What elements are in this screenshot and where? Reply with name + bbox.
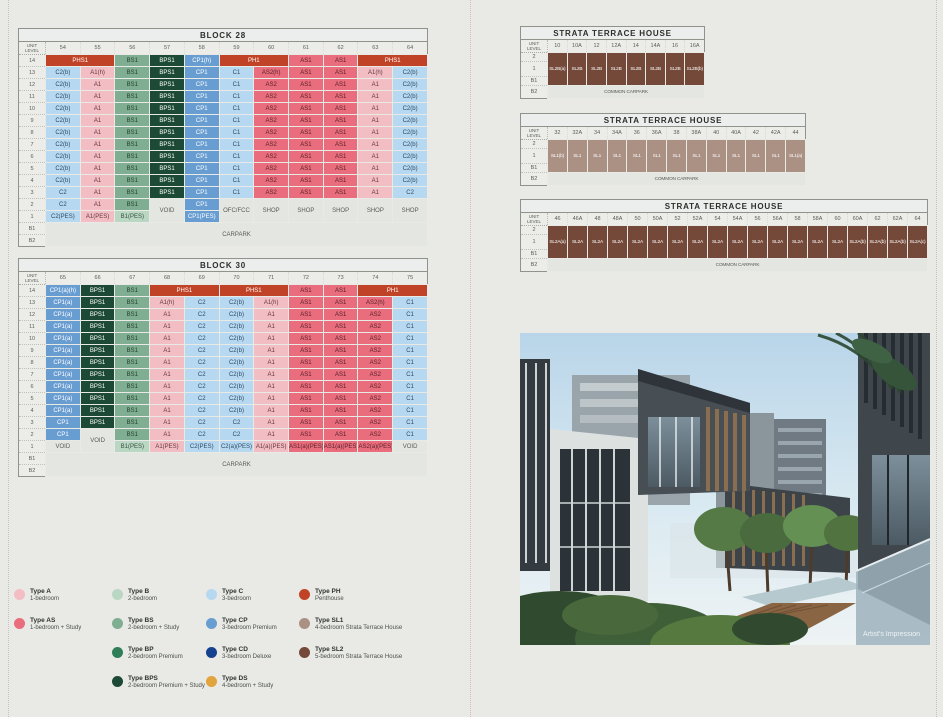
unit-cell: AS1 (289, 103, 324, 115)
stack-number: 46 (548, 213, 568, 226)
unit-cell: A1 (254, 309, 289, 321)
unit-cell: BPS1 (80, 333, 115, 345)
unit-cell: C1 (393, 297, 428, 309)
unit-cell: A1 (358, 151, 393, 163)
unit-cell: A1 (80, 199, 115, 211)
unit-cell: AS1 (323, 333, 358, 345)
unit-cell: AS2 (254, 139, 289, 151)
unit-cell: SL2A (568, 226, 588, 259)
legend-item: Type SL14-bedroom Strata Terrace House (299, 617, 454, 633)
unit-cell: SL1(b) (548, 140, 568, 173)
unit-cell: BPS1 (80, 393, 115, 405)
unit-cell: A1(h) (150, 297, 185, 309)
legend-color-dot (112, 676, 123, 687)
legend-type-code: Type BP (128, 646, 183, 654)
level-label: 11 (19, 91, 46, 103)
unit-cell: BS1 (115, 103, 150, 115)
stack-number: 57 (150, 42, 185, 55)
unit-cell: AS1 (289, 285, 324, 297)
unit-cell: SHOP (358, 199, 393, 223)
unit-cell: C1 (219, 103, 254, 115)
stack-number: 14A (646, 40, 666, 53)
level-label: 6 (19, 151, 46, 163)
unit-cell: C2 (184, 369, 219, 381)
unit-cell: A1(a)(PES) (254, 441, 289, 453)
level-label: B1 (19, 223, 46, 235)
unit-cell: AS1 (323, 405, 358, 417)
legend-type-description: 3-bedroom Deluxe (222, 654, 271, 662)
unit-cell: C2(b) (393, 127, 428, 139)
legend-color-dot (299, 647, 310, 658)
unit-cell: AS2 (254, 79, 289, 91)
unit-cell: C2(b) (46, 151, 81, 163)
unit-cell: SL1 (607, 140, 627, 173)
unit-cell: BS1 (115, 187, 150, 199)
unit-cell: AS2 (254, 127, 289, 139)
legend-type-code: Type BPS (128, 675, 205, 683)
unit-cell: C1 (393, 333, 428, 345)
level-label: B1 (521, 250, 548, 259)
unit-cell: A1 (254, 369, 289, 381)
unit-cell: CARPARK (46, 223, 428, 247)
legend-item: Type BP2-bedroom Premium (112, 646, 206, 662)
unit-cell: CP1 (184, 199, 219, 211)
level-label: 5 (19, 393, 46, 405)
unit-cell: AS1 (323, 345, 358, 357)
crop-mark-right (936, 0, 937, 717)
unit-cell: SL2A (708, 226, 728, 259)
legend-color-dot (206, 647, 217, 658)
unit-cell: SL2A (668, 226, 688, 259)
unit-cell: A1 (80, 127, 115, 139)
unit-cell: AS1(a)(PES) (323, 441, 358, 453)
unit-cell: C2(b) (219, 393, 254, 405)
level-label: 13 (19, 297, 46, 309)
unit-cell: AS1 (323, 417, 358, 429)
unit-cell: BS1 (115, 381, 150, 393)
unit-cell: BS1 (115, 151, 150, 163)
legend-color-dot (14, 618, 25, 629)
unit-cell: PHS1 (150, 285, 219, 297)
unit-cell: BS1 (115, 333, 150, 345)
unit-cell: CP1 (184, 79, 219, 91)
unit-cell: C2(b) (393, 67, 428, 79)
unit-cell: A1 (80, 103, 115, 115)
legend-type-code: Type CP (222, 617, 277, 625)
unit-cell: AS2 (358, 369, 393, 381)
stack-number: 72 (289, 272, 324, 285)
legend-item: Type DS4-bedroom + Study (206, 675, 299, 691)
unit-cell: C2(b) (393, 163, 428, 175)
unit-cell: CP1(a) (46, 333, 81, 345)
legend-item: Type BPS2-bedroom Premium + Study (112, 675, 206, 691)
unit-cell: A1 (150, 405, 185, 417)
stack-number: 48 (588, 213, 608, 226)
unit-cell: SL2B (665, 53, 685, 86)
unit-cell: AS1 (289, 333, 324, 345)
unit-cell: BPS1 (80, 297, 115, 309)
unit-cell: AS1 (289, 163, 324, 175)
unit-cell: SL1 (647, 140, 667, 173)
stack-number: 74 (358, 272, 393, 285)
unit-cell: BS1 (115, 55, 150, 67)
stack-number: 52A (688, 213, 708, 226)
unit-cell: C2 (184, 321, 219, 333)
unit-cell: COMMON CARPARK (548, 173, 806, 186)
stack-number: 60A (848, 213, 868, 226)
unit-cell: AS1 (289, 55, 324, 67)
unit-table: STRATA TERRACE HOUSEUNITLEVEL4646A4848A5… (520, 199, 928, 272)
stack-number: 54A (728, 213, 748, 226)
unit-cell: A1 (358, 139, 393, 151)
legend-type-description: 1-bedroom + Study (30, 625, 81, 633)
unit-cell: AS2 (358, 357, 393, 369)
legend-type-code: Type B (128, 588, 157, 596)
level-label: B2 (521, 86, 548, 99)
unit-cell: AS2 (254, 187, 289, 199)
level-label: 1 (19, 211, 46, 223)
unit-cell: AS1 (289, 357, 324, 369)
stack-number: 40A (726, 127, 746, 140)
stack-number: 14 (626, 40, 646, 53)
legend-type-description: 2-bedroom Premium (128, 654, 183, 662)
unit-cell: SL1 (746, 140, 766, 173)
level-label: 6 (19, 381, 46, 393)
unit-cell: A1 (254, 357, 289, 369)
unit-cell: BS1 (115, 357, 150, 369)
unit-level-header: UNITLEVEL (521, 127, 548, 140)
unit-cell: C2 (184, 357, 219, 369)
unit-cell: CP1 (184, 67, 219, 79)
unit-cell: AS1 (323, 91, 358, 103)
unit-cell: CP1(a)(h) (46, 285, 81, 297)
unit-cell: AS1 (289, 91, 324, 103)
stack-number: 60 (254, 42, 289, 55)
unit-cell: A1 (358, 79, 393, 91)
unit-cell: BS1 (115, 199, 150, 211)
stack-number: 71 (254, 272, 289, 285)
page-fold-line (470, 0, 471, 717)
unit-cell: BPS1 (150, 175, 185, 187)
stack-number: 62A (888, 213, 908, 226)
level-label: 3 (19, 187, 46, 199)
legend-type-description: 2-bedroom Premium + Study (128, 683, 205, 691)
unit-cell: C2(b) (46, 139, 81, 151)
unit-cell: A1 (80, 91, 115, 103)
unit-cell: SL2A(b) (868, 226, 888, 259)
stack-number: 50 (628, 213, 648, 226)
unit-cell: SHOP (323, 199, 358, 223)
unit-cell: BS1 (115, 91, 150, 103)
unit-cell: CP1 (46, 417, 81, 429)
unit-cell: C1 (219, 187, 254, 199)
unit-cell: A1 (358, 163, 393, 175)
unit-cell: BS1 (115, 115, 150, 127)
unit-cell: CP1 (184, 127, 219, 139)
unit-cell: BS1 (115, 321, 150, 333)
unit-cell: A1(h) (358, 67, 393, 79)
unit-cell: AS2(h) (254, 67, 289, 79)
unit-cell: SHOP (393, 199, 428, 223)
level-label: 9 (19, 345, 46, 357)
unit-cell: PHS1 (358, 55, 428, 67)
level-label: B2 (521, 259, 548, 272)
unit-cell: AS1 (323, 151, 358, 163)
unit-cell: BS1 (115, 429, 150, 441)
unit-cell: AS1 (323, 163, 358, 175)
unit-cell: AS1 (289, 381, 324, 393)
unit-cell: CP1(a) (46, 309, 81, 321)
unit-cell: A1 (80, 175, 115, 187)
legend-item: Type A1-bedroom (14, 588, 112, 604)
unit-cell: A1 (254, 417, 289, 429)
stack-number: 36 (627, 127, 647, 140)
unit-cell: SL1 (726, 140, 746, 173)
unit-cell: SL2A (788, 226, 808, 259)
legend-color-dot (206, 676, 217, 687)
unit-cell: C2(b) (46, 79, 81, 91)
level-label: 12 (19, 79, 46, 91)
unit-cell: AS1 (323, 187, 358, 199)
unit-cell: CP1(a) (46, 381, 81, 393)
photo-caption: Artist's Impression (863, 631, 920, 638)
unit-cell: AS2 (358, 381, 393, 393)
legend-item: Type CD3-bedroom Deluxe (206, 646, 299, 662)
unit-cell: AS2 (254, 151, 289, 163)
stack-number: 32 (548, 127, 568, 140)
unit-cell: C2(PES) (46, 211, 81, 223)
unit-cell: AS2 (358, 393, 393, 405)
unit-cell: SL1 (627, 140, 647, 173)
unit-cell: BPS1 (150, 55, 185, 67)
unit-cell: AS1 (289, 429, 324, 441)
level-label: B2 (19, 465, 46, 477)
unit-cell: AS1 (323, 67, 358, 79)
stack-number: 58A (808, 213, 828, 226)
legend-type-code: Type SL1 (315, 617, 402, 625)
unit-cell: CP1 (184, 175, 219, 187)
unit-cell: A1 (358, 91, 393, 103)
unit-cell: C2 (184, 309, 219, 321)
unit-cell: C2 (184, 345, 219, 357)
unit-cell: BPS1 (80, 369, 115, 381)
stack-number: 61 (289, 42, 324, 55)
unit-cell: A1(h) (80, 67, 115, 79)
unit-cell: SL2A (628, 226, 648, 259)
unit-cell: AS1 (323, 127, 358, 139)
unit-cell: AS1 (289, 79, 324, 91)
unit-cell: AS1 (323, 381, 358, 393)
legend-type-code: Type DS (222, 675, 273, 683)
unit-cell: BPS1 (150, 127, 185, 139)
unit-cell: VOID (46, 441, 81, 453)
legend-type-description: 5-bedroom Strata Terrace House (315, 654, 402, 662)
stack-number: 48A (608, 213, 628, 226)
unit-cell: BPS1 (150, 115, 185, 127)
stack-number: 56 (748, 213, 768, 226)
level-label: 14 (19, 285, 46, 297)
unit-cell: SL1 (667, 140, 687, 173)
level-label: 8 (19, 357, 46, 369)
unit-type-legend: Type A1-bedroomType AS1-bedroom + StudyT… (14, 588, 454, 691)
unit-cell: AS1 (323, 393, 358, 405)
level-label: B1 (521, 77, 548, 86)
unit-cell: A1 (80, 79, 115, 91)
level-label: B2 (521, 173, 548, 186)
unit-cell: AS2 (358, 321, 393, 333)
unit-cell: C2(b) (219, 333, 254, 345)
unit-cell: AS1 (289, 115, 324, 127)
unit-cell: BS1 (115, 405, 150, 417)
unit-cell: AS1 (323, 139, 358, 151)
stack-number: 36A (647, 127, 667, 140)
legend-item: Type AS1-bedroom + Study (14, 617, 112, 633)
stack-number: 59 (219, 42, 254, 55)
unit-cell: SHOP (289, 199, 324, 223)
unit-cell: C1 (219, 139, 254, 151)
stack-number: 12 (587, 40, 607, 53)
level-label: 8 (19, 127, 46, 139)
stack-number: 75 (393, 272, 428, 285)
unit-cell: AS2 (358, 333, 393, 345)
unit-cell: A1 (254, 381, 289, 393)
unit-cell: BS1 (115, 67, 150, 79)
unit-cell: CP1(a) (46, 405, 81, 417)
stack-number: 63 (358, 42, 393, 55)
unit-cell: CP1 (184, 115, 219, 127)
legend-type-description: 4-bedroom + Study (222, 683, 273, 691)
unit-cell: BS1 (115, 175, 150, 187)
crop-mark-left (8, 0, 9, 717)
unit-cell: SL2B(b) (685, 53, 705, 86)
stack-number: 12A (606, 40, 626, 53)
unit-cell: C2(b) (46, 127, 81, 139)
table-title: STRATA TERRACE HOUSE (521, 27, 705, 40)
unit-cell: BS1 (115, 285, 150, 297)
unit-cell: A1 (80, 115, 115, 127)
legend-item: Type SL25-bedroom Strata Terrace House (299, 646, 454, 662)
unit-cell: C2(b) (219, 321, 254, 333)
unit-cell: C1 (393, 321, 428, 333)
unit-cell: BPS1 (80, 405, 115, 417)
unit-cell: AS2 (358, 417, 393, 429)
unit-cell: C1 (393, 393, 428, 405)
unit-cell: CP1(a) (46, 345, 81, 357)
unit-cell: A1 (150, 417, 185, 429)
unit-cell: C2(b) (393, 139, 428, 151)
unit-cell: AS1 (289, 369, 324, 381)
unit-cell: A1(PES) (150, 441, 185, 453)
level-label: 2 (19, 429, 46, 441)
unit-cell: SL2B (587, 53, 607, 86)
unit-cell: C2(PES) (184, 441, 219, 453)
unit-cell: AS1 (289, 127, 324, 139)
unit-cell: C2 (46, 199, 81, 211)
unit-cell: CP1 (184, 91, 219, 103)
unit-cell: A1 (150, 309, 185, 321)
legend-column: Type C3-bedroomType CP3-bedroom PremiumT… (206, 588, 299, 691)
level-label: 12 (19, 309, 46, 321)
unit-cell: A1 (80, 163, 115, 175)
unit-cell: AS1 (323, 321, 358, 333)
stack-number: 67 (115, 272, 150, 285)
unit-cell: AS1 (289, 187, 324, 199)
unit-cell: A1 (150, 357, 185, 369)
unit-cell: C2 (184, 417, 219, 429)
stack-number: 34 (587, 127, 607, 140)
unit-cell: AS1 (289, 297, 324, 309)
legend-type-code: Type A (30, 588, 59, 596)
artist-impression-photo: Artist's Impression (520, 333, 930, 645)
unit-cell: C1 (393, 417, 428, 429)
unit-cell: AS2 (254, 103, 289, 115)
level-label: 1 (19, 441, 46, 453)
unit-cell: BPS1 (150, 67, 185, 79)
stack-number: 56A (768, 213, 788, 226)
unit-cell: A1(h) (254, 297, 289, 309)
unit-cell: BPS1 (150, 103, 185, 115)
unit-cell: A1 (150, 345, 185, 357)
unit-cell: BPS1 (150, 79, 185, 91)
unit-cell: C2(b) (219, 369, 254, 381)
unit-cell: BPS1 (150, 139, 185, 151)
unit-cell: BS1 (115, 417, 150, 429)
unit-cell: SL2A(c) (908, 226, 928, 259)
stack-number: 66 (80, 272, 115, 285)
unit-cell: C2(b) (219, 345, 254, 357)
stack-number: 10A (567, 40, 587, 53)
level-label: 10 (19, 333, 46, 345)
unit-cell: C2(a)(PES) (219, 441, 254, 453)
level-label: 7 (19, 139, 46, 151)
unit-cell: AS1 (323, 369, 358, 381)
level-label: 3 (19, 417, 46, 429)
unit-cell: C2(b) (219, 357, 254, 369)
stack-number: 56 (115, 42, 150, 55)
unit-cell: SL2A (748, 226, 768, 259)
unit-cell: AS1 (289, 393, 324, 405)
strata-terrace-table-3: STRATA TERRACE HOUSEUNITLEVEL4646A4848A5… (520, 199, 928, 272)
legend-item: Type C3-bedroom (206, 588, 299, 604)
legend-item: Type BS2-bedroom + Study (112, 617, 206, 633)
unit-cell: CARPARK (46, 453, 428, 477)
unit-cell: BS1 (115, 345, 150, 357)
strata-terrace-table-1: STRATA TERRACE HOUSEUNITLEVEL1010A1212A1… (520, 26, 705, 99)
unit-cell: SL2B (606, 53, 626, 86)
unit-cell: SL2B (646, 53, 666, 86)
unit-cell: COMMON CARPARK (548, 86, 705, 99)
unit-cell: SL1 (766, 140, 786, 173)
unit-cell: SL2A (808, 226, 828, 259)
unit-cell: C1 (219, 127, 254, 139)
unit-cell: A1 (254, 345, 289, 357)
unit-cell: BS1 (115, 163, 150, 175)
unit-cell: AS1 (289, 345, 324, 357)
legend-color-dot (14, 589, 25, 600)
unit-cell: PH1 (358, 285, 428, 297)
unit-cell: SL1 (567, 140, 587, 173)
unit-cell: A1 (358, 115, 393, 127)
stack-number: 58 (184, 42, 219, 55)
table-title: BLOCK 30 (19, 259, 428, 272)
legend-column: Type A1-bedroomType AS1-bedroom + Study (14, 588, 112, 633)
table-title: STRATA TERRACE HOUSE (521, 200, 928, 213)
unit-cell: C1 (219, 175, 254, 187)
unit-cell: C2(b) (46, 67, 81, 79)
unit-cell: BS1 (115, 309, 150, 321)
stack-number: 68 (150, 272, 185, 285)
stack-number: 64 (393, 42, 428, 55)
